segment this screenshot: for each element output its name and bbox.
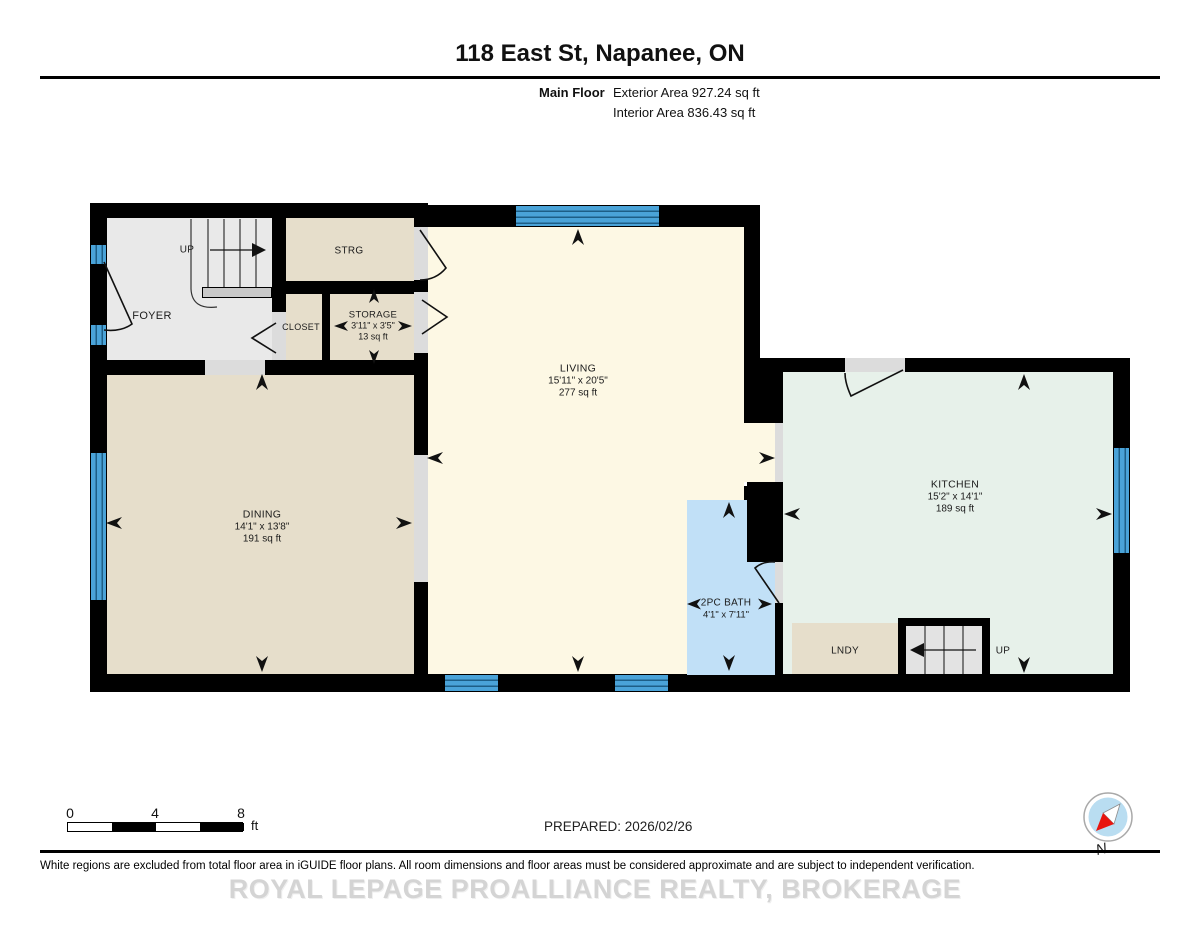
window <box>90 453 107 600</box>
stair-landing <box>202 287 272 298</box>
stairs-up-label: UP <box>180 245 195 256</box>
wall-segment <box>90 203 428 218</box>
window <box>90 325 107 345</box>
scale-tick-0: 0 <box>66 805 74 821</box>
brokerage-watermark: ROYAL LEPAGE PROALLIANCE REALTY, BROKERA… <box>229 874 962 905</box>
opening-kitchen-entry <box>845 358 905 372</box>
wall-segment <box>90 674 1130 692</box>
window <box>445 674 498 692</box>
room-label-foyer: FOYER <box>132 310 171 322</box>
opening-living-kitchen <box>775 423 783 482</box>
prepared-date: PREPARED: 2026/02/26 <box>544 819 692 834</box>
kitchen-staircase-treads <box>906 626 982 674</box>
wall-segment <box>272 281 428 294</box>
room-living-nook <box>744 423 775 482</box>
room-label-dining: DINING 14'1" x 13'8" 191 sq ft <box>235 509 290 546</box>
room-label-bath: 2PC BATH 4'1" x 7'11" <box>701 597 752 622</box>
scale-bar-rule <box>67 822 243 832</box>
window <box>90 245 107 264</box>
wall-segment <box>744 205 760 358</box>
scale-bar-segment <box>112 823 156 831</box>
opening-foyer-dining <box>205 360 265 375</box>
opening-bath-door <box>775 562 783 603</box>
window <box>1113 448 1130 553</box>
opening-dining-living <box>414 455 428 582</box>
compass-icon <box>1080 791 1136 847</box>
opening-storage-passage <box>414 292 428 353</box>
wall-segment <box>90 203 107 692</box>
room-label-laundry: LNDY <box>831 646 859 657</box>
footer-divider <box>40 850 1160 853</box>
room-label-storage: STORAGE 3'11" x 3'5" 13 sq ft <box>349 310 397 343</box>
scale-unit-label: ft <box>251 818 258 833</box>
scale-tick-8: 8 <box>237 805 245 821</box>
stairs-up-label-kitchen: UP <box>996 646 1011 657</box>
window <box>516 205 659 227</box>
scale-tick-4: 4 <box>151 805 159 821</box>
room-label-strg: STRG <box>335 246 364 257</box>
opening-foyer-closet <box>272 312 286 360</box>
wall-segment <box>744 358 1130 372</box>
opening-strg-door <box>414 227 428 280</box>
scale-bar-segment <box>200 823 244 831</box>
room-label-closet: CLOSET <box>282 322 320 332</box>
floorplan-page: 118 East St, Napanee, ON Main Floor Exte… <box>0 0 1200 927</box>
room-label-living: LIVING 15'11" x 20'5" 277 sq ft <box>548 363 608 400</box>
window <box>615 674 668 692</box>
footer-disclaimer: White regions are excluded from total fl… <box>40 860 975 872</box>
wall-segment <box>744 358 784 423</box>
room-label-kitchen: KITCHEN 15'2" x 14'1" 189 sq ft <box>928 479 983 516</box>
floorplan-canvas: FOYER UP STRG CLOSET STORAGE 3'11" x 3'5… <box>0 0 1200 927</box>
wall-segment <box>747 482 783 562</box>
